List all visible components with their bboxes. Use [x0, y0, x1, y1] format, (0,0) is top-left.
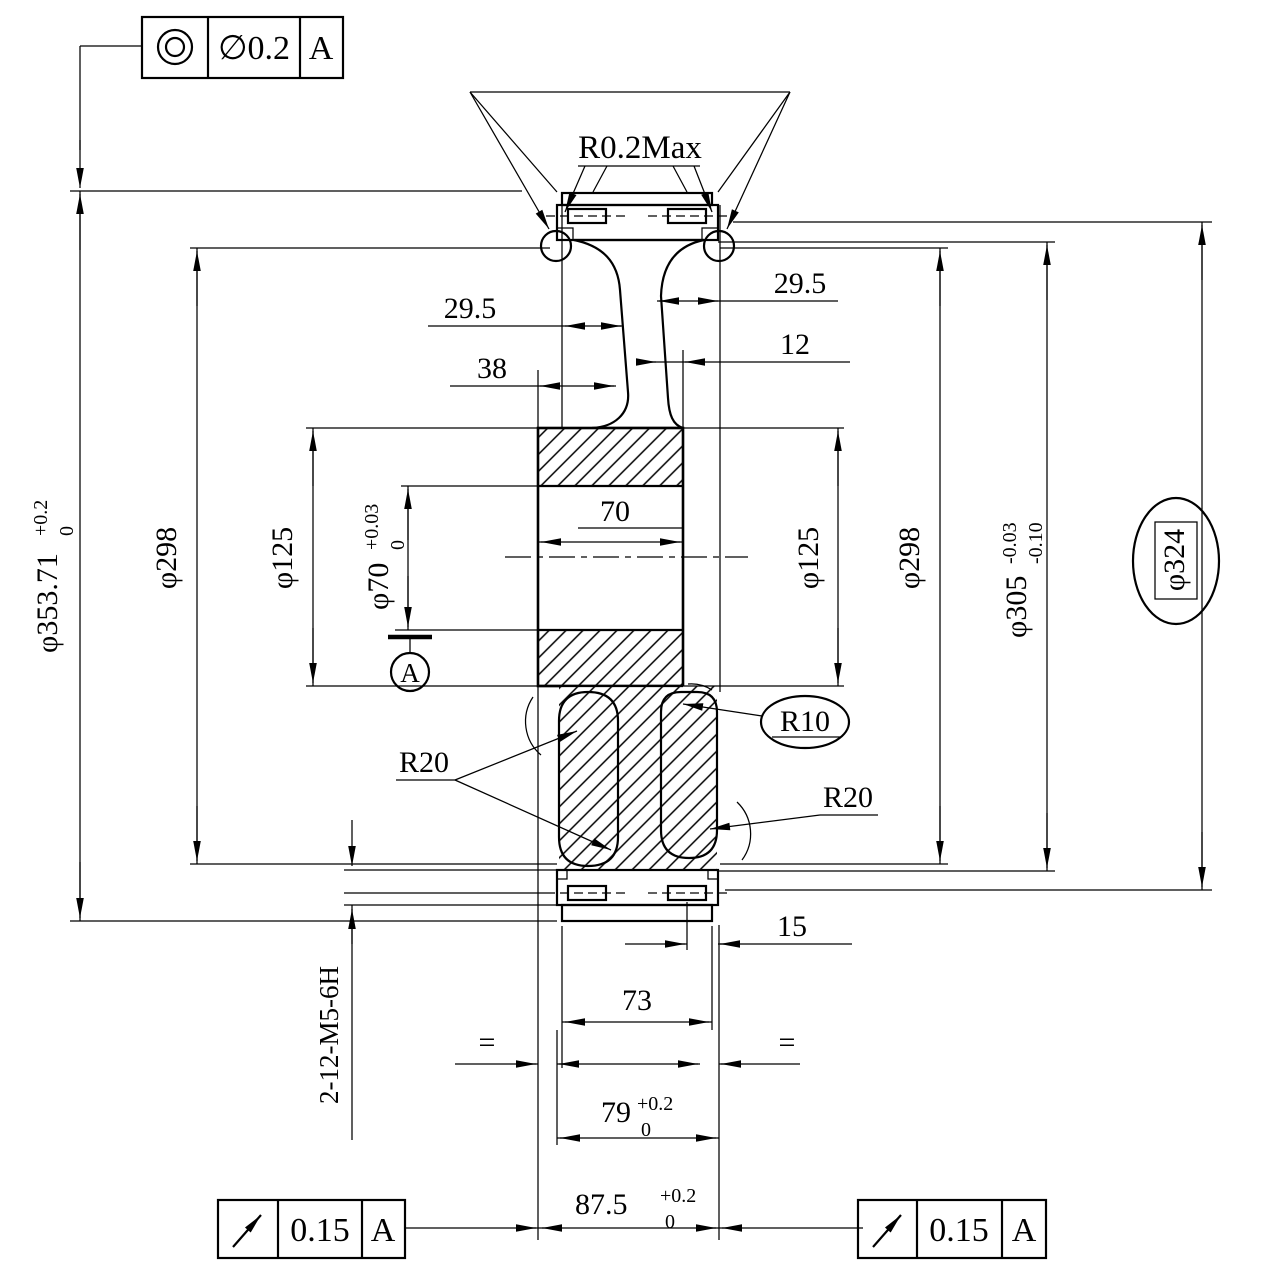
m5-hole-bottom-right: [668, 886, 706, 900]
dim-295l-text: 29.5: [444, 292, 497, 325]
dim-12: 12: [640, 328, 850, 362]
dim-79-sup: +0.2: [637, 1093, 673, 1115]
dim-d298l-text: φ298: [150, 527, 183, 589]
label-r10: R10: [780, 705, 830, 738]
dim-295-left: 29.5: [428, 292, 623, 326]
dim-295r-text: 29.5: [774, 267, 827, 300]
dim-295-right: 29.5: [657, 267, 838, 301]
fcf-bl-datum: A: [371, 1212, 396, 1249]
dim-d70-text: φ70: [362, 563, 395, 610]
fcf-br-datum: A: [1012, 1212, 1037, 1249]
upper-web: [574, 240, 704, 428]
dim-d353-sub: 0: [56, 526, 78, 536]
fcf-top: ∅0.2 A: [80, 17, 343, 188]
dim-73-text: 73: [622, 984, 652, 1017]
dim-d305: φ305 -0.03 -0.10: [999, 242, 1047, 871]
dim-875: 87.5 +0.2 0: [406, 1185, 863, 1233]
circular-runout-icon: [233, 1215, 261, 1247]
dim-d125-right: φ125: [792, 428, 838, 686]
dim-d305-sub: -0.10: [1025, 522, 1047, 564]
dim-d70: φ70 +0.03 0: [361, 486, 409, 630]
hub-hatch-lower: [538, 630, 683, 686]
fcf-top-datum: A: [309, 30, 334, 67]
dim-d298-left: φ298: [150, 248, 197, 864]
dim-d353-sup: +0.2: [30, 500, 52, 536]
dim-d125-left: φ125: [266, 428, 313, 686]
dim-d324-text: φ324: [1158, 529, 1191, 591]
dim-875-sup: +0.2: [660, 1185, 696, 1207]
dim-73: 73: [562, 984, 712, 1022]
fcf-br-tolerance: 0.15: [929, 1212, 989, 1249]
callout-r02max: R0.2Max: [470, 92, 790, 229]
fcf-bottom-right: 0.15 A: [858, 1200, 1046, 1258]
dim-79-text: 79: [601, 1096, 631, 1129]
dim-875-text: 87.5: [575, 1188, 628, 1221]
dim-equal-right: =: [779, 1026, 796, 1059]
dim-12-text: 12: [780, 328, 810, 361]
fcf-bottom-left: 0.15 A: [218, 1200, 405, 1258]
dim-equal-left: =: [479, 1026, 496, 1059]
thread-note-text: 2-12-M5-6H: [314, 966, 344, 1104]
dim-d305-sup: -0.03: [999, 522, 1021, 564]
dim-equal-row: = =: [455, 1026, 800, 1064]
dim-d125l-text: φ125: [266, 527, 299, 589]
m5-hole-top-left: [568, 209, 606, 223]
dim-15: 15: [625, 910, 852, 944]
bottom-rim-band: [562, 905, 712, 921]
hub-hatch-upper: [538, 428, 683, 486]
m5-hole-top-right: [668, 209, 706, 223]
lower-web-hatch: [559, 686, 717, 870]
label-r02max: R0.2Max: [578, 130, 702, 166]
datum-a-label: A: [400, 658, 420, 688]
dim-d353-text: φ353.71: [31, 553, 64, 653]
dim-d125r-text: φ125: [792, 527, 825, 589]
drawing-canvas: ∅0.2 A R0.2Max φ353.71 +0.2 0 φ298: [0, 0, 1279, 1280]
fcf-top-tolerance: ∅0.2: [218, 30, 290, 67]
concentricity-icon: [158, 30, 192, 64]
dim-d70-sub: 0: [387, 540, 409, 550]
dim-d305-text: φ305: [1000, 576, 1033, 638]
datum-a: A: [388, 637, 432, 691]
label-r20-right: R20: [823, 781, 873, 814]
engineering-drawing-sheet: ∅0.2 A R0.2Max φ353.71 +0.2 0 φ298: [0, 0, 1279, 1280]
dim-38-text: 38: [477, 352, 507, 385]
dim-70: 70: [538, 495, 683, 542]
bottom-rim-notch-left: [557, 870, 567, 879]
dim-d353: φ353.71 +0.2 0: [30, 191, 80, 921]
top-rim-band: [562, 193, 712, 205]
circular-runout-icon: [873, 1215, 901, 1247]
m5-hole-bottom-left: [568, 886, 606, 900]
label-r20-left: R20: [399, 746, 449, 779]
thread-note: 2-12-M5-6H: [314, 820, 352, 1140]
dim-d324: φ324: [1133, 222, 1219, 890]
dim-875-sub: 0: [665, 1211, 675, 1233]
dim-d298-right: φ298: [893, 248, 940, 864]
dim-d70-sup: +0.03: [361, 504, 383, 550]
callout-r20-right: R20: [710, 781, 878, 860]
dim-70-text: 70: [600, 495, 630, 528]
dim-d298r-text: φ298: [893, 527, 926, 589]
fcf-bl-tolerance: 0.15: [290, 1212, 350, 1249]
part-section: [505, 193, 748, 921]
dim-15-text: 15: [777, 910, 807, 943]
dim-79-sub: 0: [641, 1119, 651, 1141]
bottom-rim-notch-right: [708, 870, 718, 879]
dim-38: 38: [450, 352, 616, 386]
dim-79: 79 +0.2 0: [557, 1093, 719, 1141]
